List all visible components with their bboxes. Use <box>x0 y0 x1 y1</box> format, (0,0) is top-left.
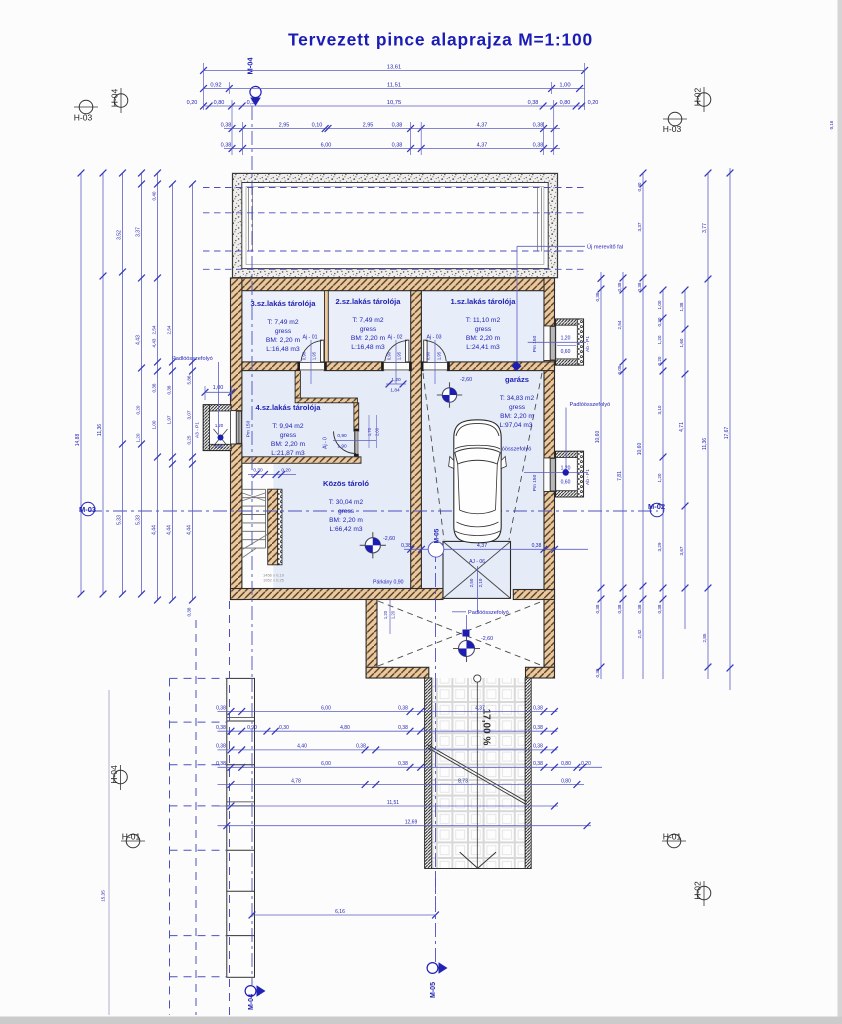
svg-text:L:16,48 m3: L:16,48 m3 <box>266 346 300 353</box>
svg-text:17,00 %: 17,00 % <box>481 709 492 746</box>
svg-text:4,71: 4,71 <box>679 422 685 432</box>
svg-text:1,00: 1,00 <box>151 420 156 429</box>
svg-text:11,36: 11,36 <box>97 424 103 436</box>
svg-text:3.sz.lakás tárolója: 3.sz.lakás tárolója <box>250 299 316 308</box>
svg-text:0,38: 0,38 <box>151 383 156 392</box>
svg-text:1,70: 1,70 <box>367 427 372 436</box>
svg-text:0,90: 0,90 <box>302 351 307 360</box>
svg-text:1,20: 1,20 <box>657 473 662 482</box>
svg-text:0,38: 0,38 <box>356 744 366 750</box>
svg-text:H-02: H-02 <box>693 881 703 900</box>
svg-text:0,20: 0,20 <box>281 468 291 474</box>
svg-text:M-05: M-05 <box>434 528 441 543</box>
svg-text:0,20: 0,20 <box>187 100 198 106</box>
svg-text:1,20: 1,20 <box>383 610 388 619</box>
svg-text:gress: gress <box>509 404 526 411</box>
svg-text:H-03: H-03 <box>74 113 93 123</box>
svg-text:0,16: 0,16 <box>829 120 834 129</box>
svg-text:1,20: 1,20 <box>391 377 401 383</box>
svg-text:-2,60: -2,60 <box>481 636 493 642</box>
svg-text:6,00: 6,00 <box>321 142 332 148</box>
svg-text:BM: 2,20 m: BM: 2,20 m <box>271 441 306 448</box>
svg-text:3,77: 3,77 <box>702 223 708 233</box>
svg-text:0,38: 0,38 <box>166 385 171 394</box>
svg-text:Új merevítő fal: Új merevítő fal <box>587 244 623 251</box>
svg-text:3,07: 3,07 <box>186 410 191 419</box>
svg-text:14,88: 14,88 <box>75 434 81 447</box>
svg-text:1,95: 1,95 <box>397 351 402 360</box>
svg-text:0,38: 0,38 <box>216 725 226 731</box>
svg-text:5,33: 5,33 <box>135 515 141 525</box>
svg-text:T: 30,04 m2: T: 30,04 m2 <box>329 499 364 506</box>
svg-text:Aj - 03: Aj - 03 <box>427 335 442 341</box>
svg-text:2,10: 2,10 <box>478 578 483 587</box>
svg-text:4,40: 4,40 <box>297 744 307 750</box>
svg-text:0,60: 0,60 <box>561 349 571 355</box>
svg-text:11,51: 11,51 <box>387 800 399 806</box>
svg-text:4,37: 4,37 <box>477 122 488 128</box>
svg-text:Pm 150: Pm 150 <box>246 420 252 437</box>
svg-text:4,37: 4,37 <box>475 705 485 711</box>
svg-text:gress: gress <box>360 326 377 333</box>
svg-text:2,50: 2,50 <box>469 578 474 587</box>
svg-text:10,60: 10,60 <box>637 443 643 456</box>
svg-text:11,51: 11,51 <box>387 82 401 88</box>
svg-text:5,33: 5,33 <box>116 515 122 525</box>
svg-text:2.sz.lakás tárolója: 2.sz.lakás tárolója <box>335 297 401 306</box>
svg-text:3,67: 3,67 <box>679 546 684 555</box>
svg-text:4,78: 4,78 <box>291 778 301 784</box>
svg-text:0,38: 0,38 <box>533 705 543 711</box>
svg-text:0,38: 0,38 <box>532 543 542 549</box>
svg-text:0,38: 0,38 <box>637 604 642 613</box>
svg-text:gress: gress <box>475 326 492 333</box>
svg-text:0,38: 0,38 <box>595 292 600 301</box>
svg-text:AJ - 06: AJ - 06 <box>469 559 485 565</box>
svg-text:0,90: 0,90 <box>247 725 257 731</box>
svg-text:0,80: 0,80 <box>561 761 571 767</box>
svg-text:BM: 2,20 m: BM: 2,20 m <box>266 337 301 344</box>
svg-text:7,81: 7,81 <box>617 471 623 481</box>
svg-text:10,60: 10,60 <box>595 431 601 444</box>
svg-text:Ab - P1: Ab - P1 <box>585 469 591 485</box>
svg-text:Padlóösszefolyó: Padlóösszefolyó <box>570 402 611 408</box>
svg-text:T: 9,94 m2: T: 9,94 m2 <box>272 423 304 430</box>
svg-text:T: 7,49 m2: T: 7,49 m2 <box>267 319 299 326</box>
svg-text:0,38: 0,38 <box>221 142 232 148</box>
svg-text:0,38: 0,38 <box>617 282 622 291</box>
svg-text:11,36: 11,36 <box>702 438 708 450</box>
svg-text:2,54: 2,54 <box>166 325 171 334</box>
svg-text:0,92: 0,92 <box>210 82 221 88</box>
svg-text:0,38: 0,38 <box>216 705 226 711</box>
svg-text:1,95: 1,95 <box>312 351 317 360</box>
svg-text:1,00: 1,00 <box>559 82 570 88</box>
svg-text:1,60: 1,60 <box>679 338 684 347</box>
svg-text:gress: gress <box>338 508 355 515</box>
svg-text:0,38: 0,38 <box>216 761 226 767</box>
svg-text:0,20: 0,20 <box>657 317 662 326</box>
svg-text:1,84: 1,84 <box>390 388 400 394</box>
svg-text:0,38: 0,38 <box>392 122 403 128</box>
svg-text:Padlóösszefolyó: Padlóösszefolyó <box>468 610 509 616</box>
svg-text:0,38: 0,38 <box>221 122 232 128</box>
svg-text:6,00: 6,00 <box>321 705 331 711</box>
svg-text:BM: 2,20 m: BM: 2,20 m <box>351 335 386 342</box>
svg-text:M-04: M-04 <box>246 57 255 75</box>
svg-text:0,40: 0,40 <box>151 191 156 200</box>
svg-text:0,38: 0,38 <box>637 282 642 291</box>
svg-text:12,69: 12,69 <box>405 820 418 826</box>
svg-text:T: 7,49 m2: T: 7,49 m2 <box>352 317 384 324</box>
svg-text:BM: 2,20 m: BM: 2,20 m <box>466 335 501 342</box>
svg-text:1,20: 1,20 <box>215 423 224 428</box>
svg-text:T: 34,83 m2: T: 34,83 m2 <box>500 395 535 402</box>
svg-text:3,37: 3,37 <box>637 222 642 231</box>
svg-text:H-01: H-01 <box>122 832 141 842</box>
svg-text:0,80: 0,80 <box>214 100 225 106</box>
svg-text:BM: 2,20 m: BM: 2,20 m <box>329 517 363 524</box>
svg-text:0,38: 0,38 <box>533 725 543 731</box>
svg-text:0,38: 0,38 <box>186 607 191 616</box>
svg-text:2,54: 2,54 <box>151 325 156 334</box>
svg-text:3,29: 3,29 <box>657 542 662 551</box>
svg-text:0,38: 0,38 <box>657 604 662 613</box>
svg-text:0,38: 0,38 <box>617 604 622 613</box>
svg-text:4,80: 4,80 <box>340 725 350 731</box>
svg-text:1,38: 1,38 <box>679 302 684 311</box>
svg-text:2,42: 2,42 <box>637 629 642 638</box>
svg-text:3,52: 3,52 <box>116 230 122 240</box>
svg-text:1.sz.lakás tárolója: 1.sz.lakás tárolója <box>450 297 516 306</box>
svg-text:0,20: 0,20 <box>581 761 591 767</box>
svg-text:H-04: H-04 <box>109 765 119 784</box>
svg-text:4,44: 4,44 <box>151 525 157 535</box>
svg-text:4.sz.lakás tárolója: 4.sz.lakás tárolója <box>255 403 321 412</box>
svg-text:4,37: 4,37 <box>477 142 488 148</box>
svg-text:Párkány 0,90: Párkány 0,90 <box>373 580 404 586</box>
svg-text:2,54: 2,54 <box>617 320 622 329</box>
svg-text:H-04: H-04 <box>110 89 120 108</box>
svg-text:1,20: 1,20 <box>561 336 571 342</box>
svg-text:6,00: 6,00 <box>321 761 331 767</box>
svg-text:4,44: 4,44 <box>166 525 172 535</box>
svg-text:BM: 2,20 m: BM: 2,20 m <box>500 413 534 420</box>
svg-text:L:97,04 m3: L:97,04 m3 <box>500 422 533 429</box>
svg-text:L:16,48 m3: L:16,48 m3 <box>351 344 385 351</box>
svg-text:2,95: 2,95 <box>363 122 374 128</box>
svg-text:0,30: 0,30 <box>253 468 263 474</box>
svg-text:H-02: H-02 <box>693 88 703 107</box>
svg-text:L:66,42 m3: L:66,42 m3 <box>330 526 363 533</box>
svg-text:M-04: M-04 <box>248 994 255 1010</box>
svg-text:Pm 150: Pm 150 <box>532 474 538 491</box>
svg-text:1,90: 1,90 <box>337 444 347 450</box>
svg-text:0,20: 0,20 <box>657 356 662 365</box>
svg-text:garázs: garázs <box>505 375 529 384</box>
svg-text:Pm 150: Pm 150 <box>532 335 538 352</box>
svg-text:gress: gress <box>275 328 292 335</box>
svg-text:0,40: 0,40 <box>637 182 642 191</box>
svg-text:6,16: 6,16 <box>335 909 345 915</box>
svg-text:0,38: 0,38 <box>533 744 543 750</box>
svg-text:0,38: 0,38 <box>392 142 403 148</box>
svg-text:1,00: 1,00 <box>657 300 662 309</box>
svg-text:gress: gress <box>280 432 297 439</box>
svg-text:M-03: M-03 <box>79 505 96 514</box>
svg-text:0,38: 0,38 <box>595 668 600 677</box>
svg-text:0,60: 0,60 <box>215 444 224 449</box>
svg-text:H-01: H-01 <box>663 832 682 842</box>
svg-text:0,38: 0,38 <box>398 705 408 711</box>
svg-text:L:24,41 m3: L:24,41 m3 <box>466 344 500 351</box>
svg-text:0,60: 0,60 <box>561 480 571 486</box>
svg-text:1,20: 1,20 <box>391 610 396 619</box>
svg-text:Aj - 02: Aj - 02 <box>388 335 403 341</box>
svg-text:-2,60: -2,60 <box>460 377 472 383</box>
svg-text:0,38: 0,38 <box>247 100 258 106</box>
svg-text:4,37: 4,37 <box>477 543 487 549</box>
svg-text:0,38: 0,38 <box>533 142 544 148</box>
svg-text:Aj - 01: Aj - 01 <box>303 335 318 341</box>
svg-text:1,20: 1,20 <box>135 433 140 442</box>
svg-text:0,38: 0,38 <box>401 543 411 549</box>
svg-text:L:21,87 m3: L:21,87 m3 <box>271 450 305 457</box>
svg-text:0,38: 0,38 <box>595 604 600 613</box>
svg-text:3,10: 3,10 <box>657 405 662 414</box>
svg-text:0,80: 0,80 <box>560 100 571 106</box>
svg-text:0,38: 0,38 <box>533 122 544 128</box>
svg-text:1952 x 0,25: 1952 x 0,25 <box>263 578 285 583</box>
svg-text:10,75: 10,75 <box>387 100 402 106</box>
svg-text:T: 11,10 m2: T: 11,10 m2 <box>466 317 501 324</box>
svg-text:0,38: 0,38 <box>216 744 226 750</box>
svg-text:4,43: 4,43 <box>135 335 141 345</box>
svg-text:Közös tároló: Közös tároló <box>323 479 369 488</box>
svg-text:1,00: 1,00 <box>213 385 224 391</box>
svg-text:0,38: 0,38 <box>533 761 543 767</box>
svg-text:0,10: 0,10 <box>312 122 323 128</box>
svg-text:M-05: M-05 <box>430 982 437 998</box>
svg-text:0,25: 0,25 <box>186 435 191 444</box>
svg-text:Aj - 0: Aj - 0 <box>323 437 329 449</box>
svg-text:2,95: 2,95 <box>279 122 290 128</box>
svg-text:5,86: 5,86 <box>186 375 191 384</box>
svg-text:Tervezett pince alaprajza M=1: Tervezett pince alaprajza M=1:100 <box>288 30 593 50</box>
svg-text:4,44: 4,44 <box>186 525 192 535</box>
svg-text:4,43: 4,43 <box>151 338 156 347</box>
svg-text:0,38: 0,38 <box>398 761 408 767</box>
svg-text:1,95: 1,95 <box>437 351 442 360</box>
svg-text:0,90: 0,90 <box>426 351 431 360</box>
svg-text:2,85: 2,85 <box>702 633 707 642</box>
svg-text:-2,60: -2,60 <box>383 536 395 542</box>
svg-text:15,35: 15,35 <box>101 890 106 902</box>
svg-text:0,80: 0,80 <box>561 778 571 784</box>
svg-text:0,20: 0,20 <box>135 405 140 414</box>
svg-text:A3 - P1: A3 - P1 <box>195 422 201 438</box>
svg-text:0,90: 0,90 <box>337 433 347 439</box>
svg-text:0,05: 0,05 <box>617 365 622 374</box>
svg-text:0,38: 0,38 <box>528 100 539 106</box>
svg-text:0,38: 0,38 <box>398 725 408 731</box>
svg-text:H-03: H-03 <box>663 124 682 134</box>
svg-text:Ab - P1: Ab - P1 <box>585 336 591 352</box>
svg-text:M-02: M-02 <box>648 502 665 511</box>
svg-text:13,61: 13,61 <box>387 64 402 70</box>
svg-text:0,20: 0,20 <box>588 100 599 106</box>
svg-text:1,97: 1,97 <box>166 415 171 424</box>
svg-text:1,20: 1,20 <box>657 335 662 344</box>
svg-text:17,67: 17,67 <box>724 427 730 440</box>
svg-text:3,37: 3,37 <box>135 227 141 237</box>
svg-text:0,30: 0,30 <box>279 725 289 731</box>
svg-text:0,90: 0,90 <box>387 351 392 360</box>
svg-text:2,00: 2,00 <box>375 427 380 436</box>
svg-text:8,73: 8,73 <box>458 778 468 784</box>
